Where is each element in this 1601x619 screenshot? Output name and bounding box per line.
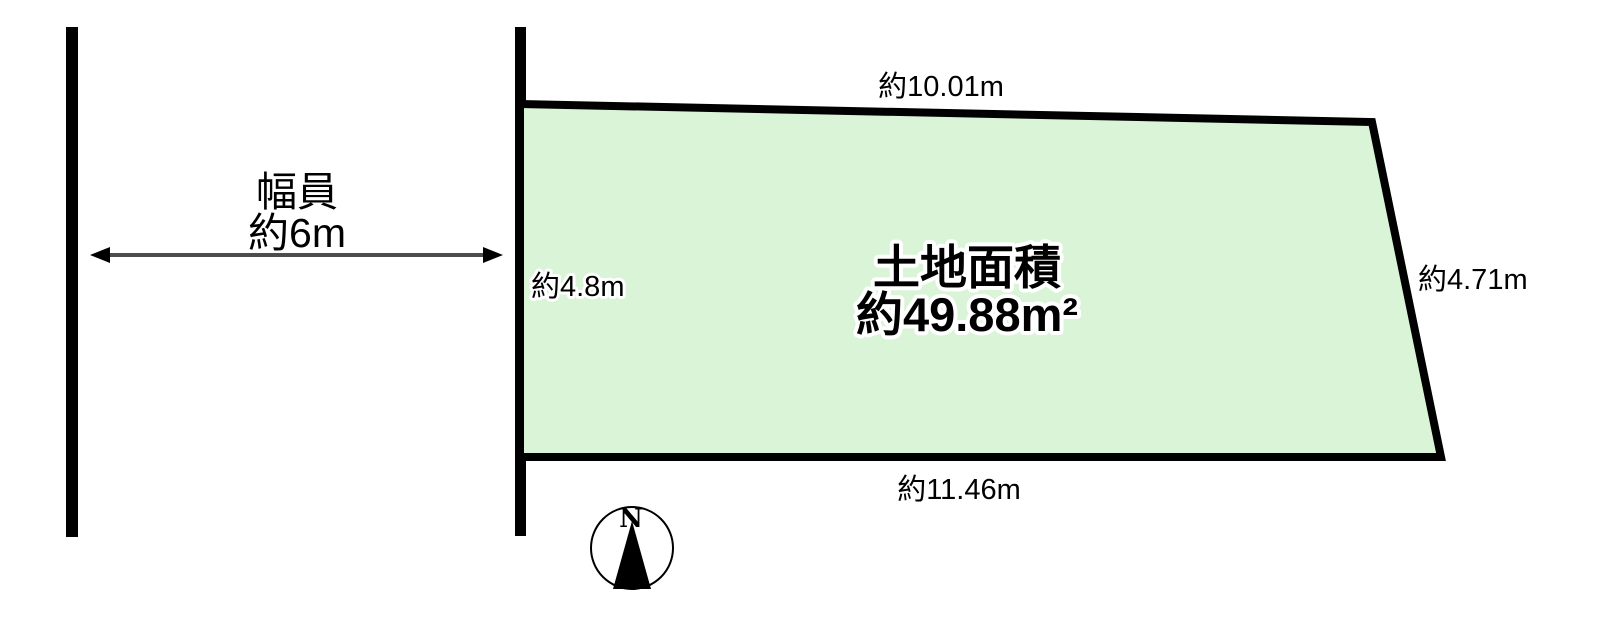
land-area-title: 土地面積 [873,241,1061,294]
land-plot-diagram: 幅員 約6m 約10.01m 約4.8m 約4.71m 約11.46m 土地面積… [0,0,1601,619]
road-width-label-line2: 約6m [248,210,346,256]
arrow-head-right [483,247,503,263]
dimension-bottom-label: 約11.46m [897,473,1021,506]
arrow-head-left [90,247,110,263]
dimension-top-label: 約10.01m [878,70,1004,103]
dimension-left-label: 約4.8m [531,270,624,303]
land-area-value: 約49.88m² [856,288,1078,341]
road-width-label-line1: 幅員 [256,169,338,215]
dimension-right-label: 約4.71m [1418,263,1528,296]
road-edge-left-line [66,27,78,537]
compass-north-label: N [619,504,643,534]
compass: N [591,504,673,589]
diagram-svg: 幅員 約6m 約10.01m 約4.8m 約4.71m 約11.46m 土地面積… [0,0,1601,619]
